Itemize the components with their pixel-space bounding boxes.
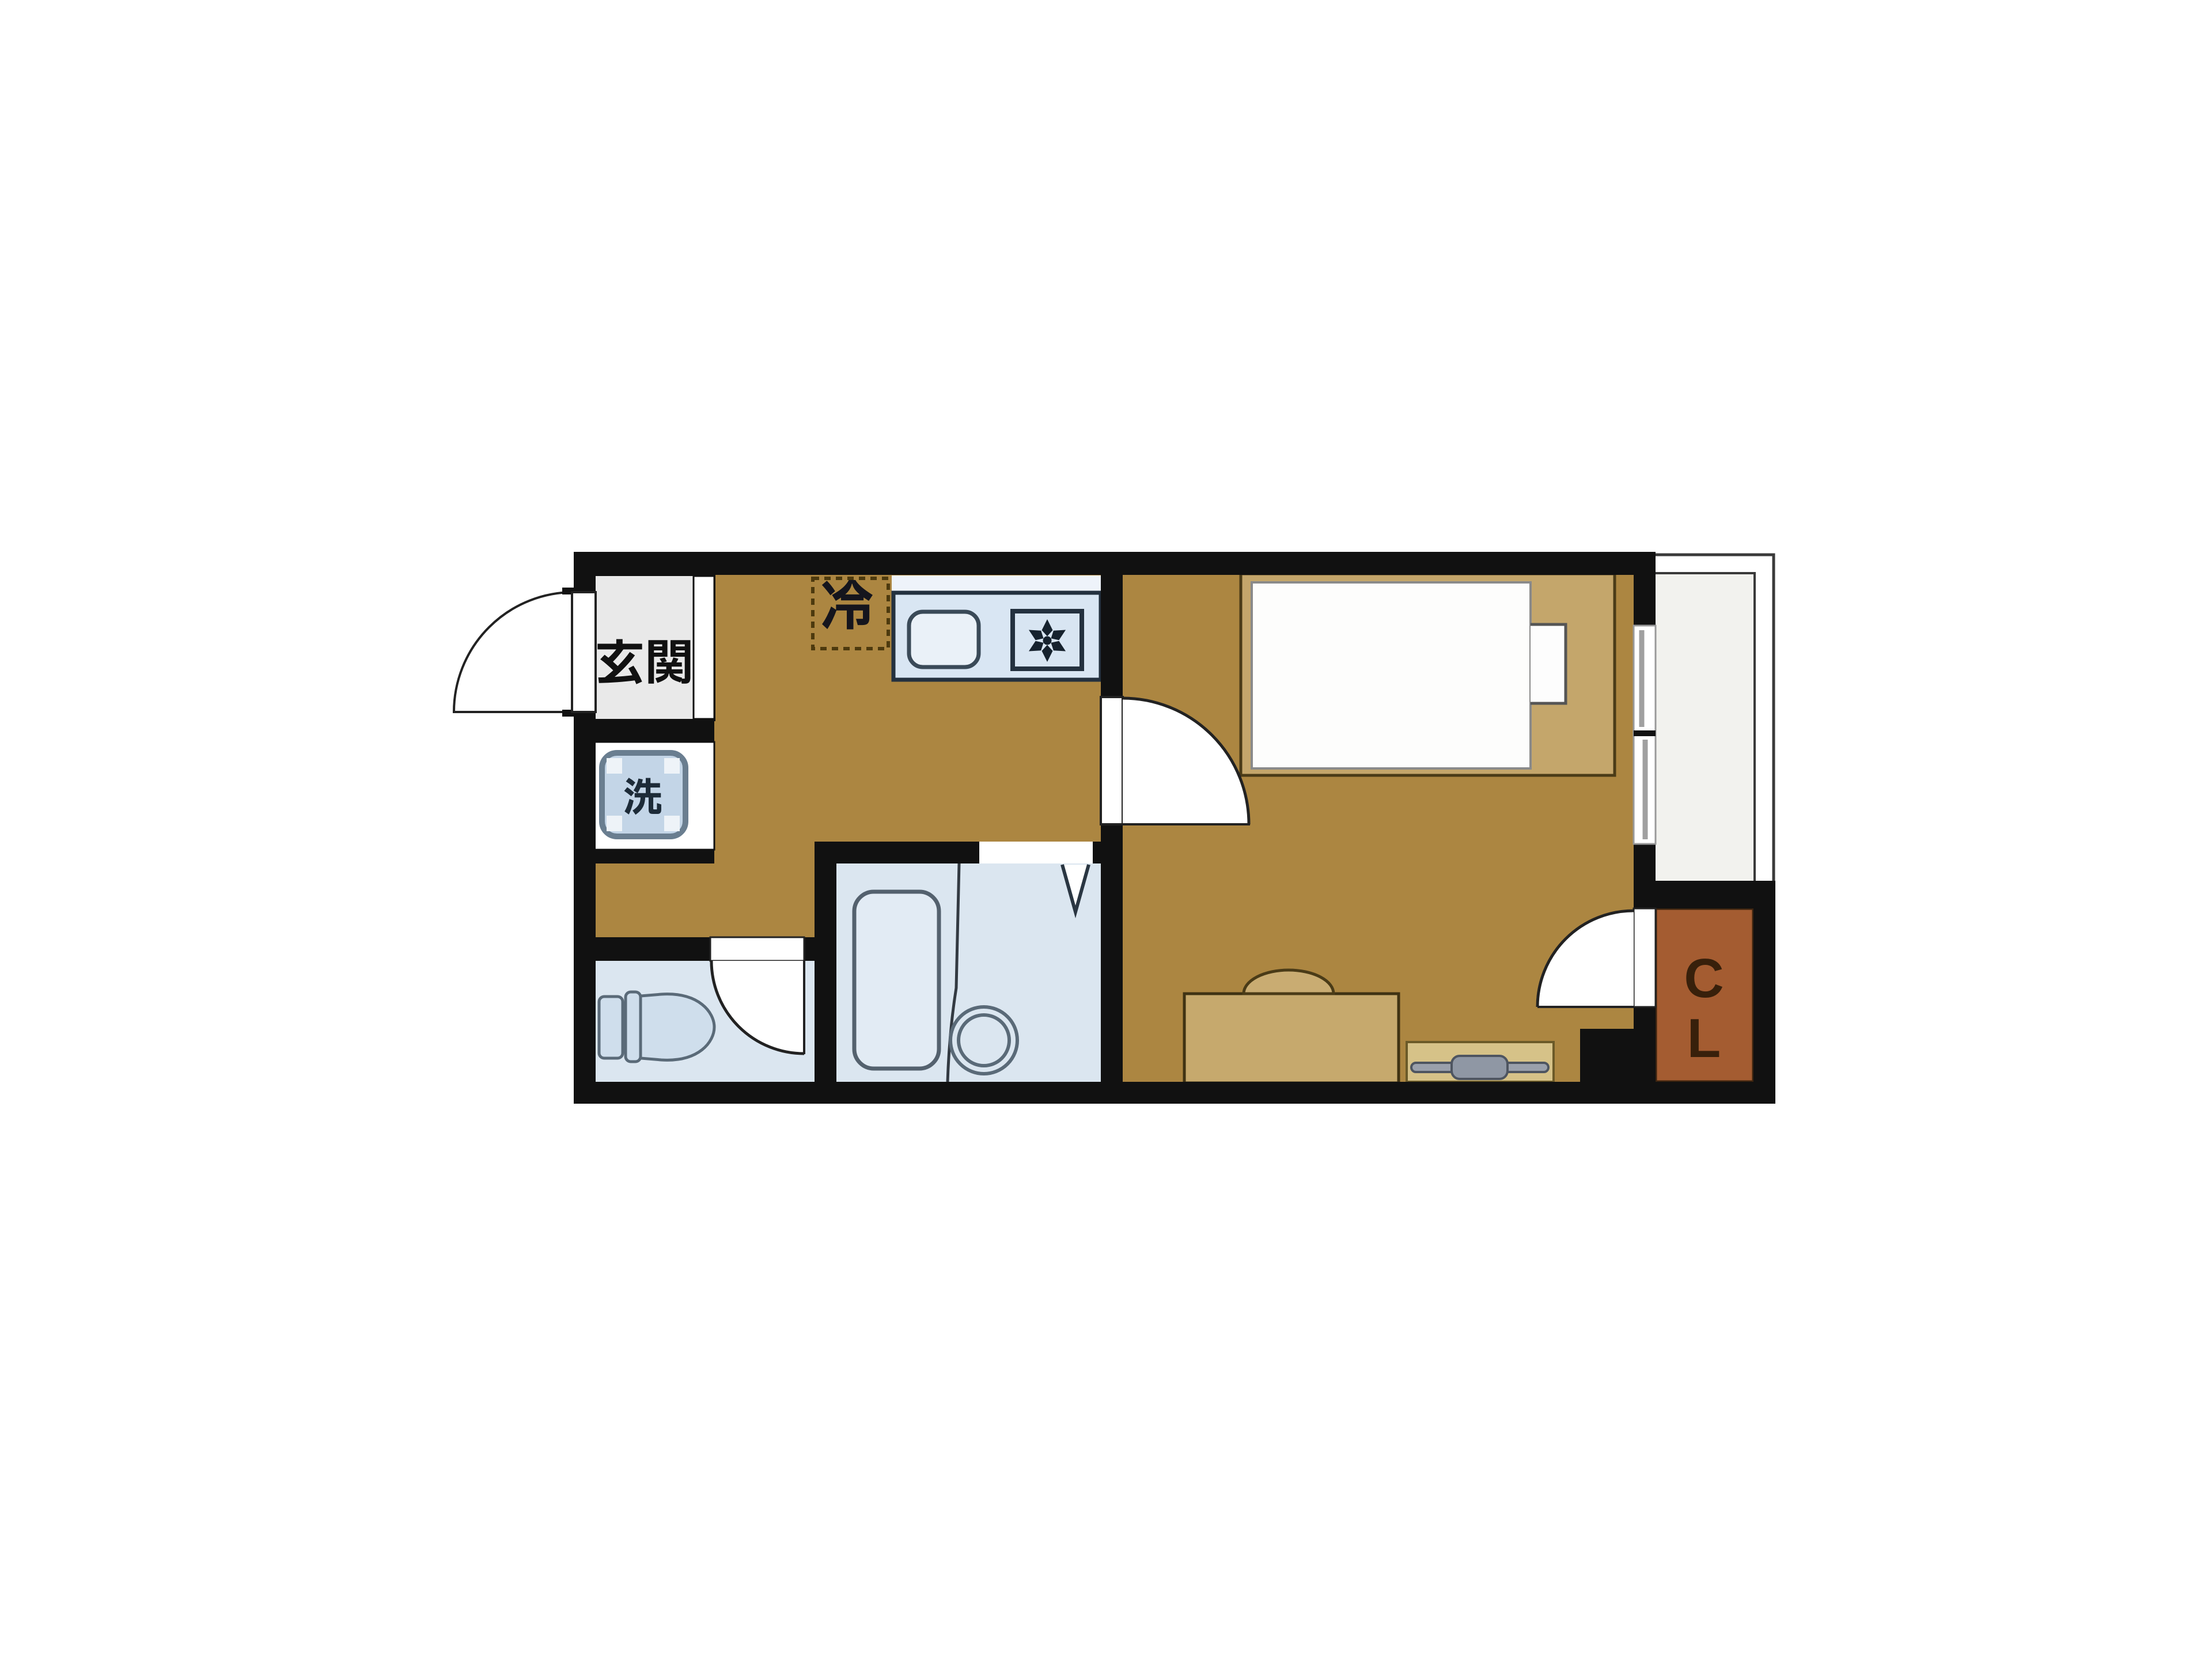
svg-text:L: L bbox=[1687, 1007, 1721, 1069]
svg-text:C: C bbox=[1684, 948, 1724, 1009]
